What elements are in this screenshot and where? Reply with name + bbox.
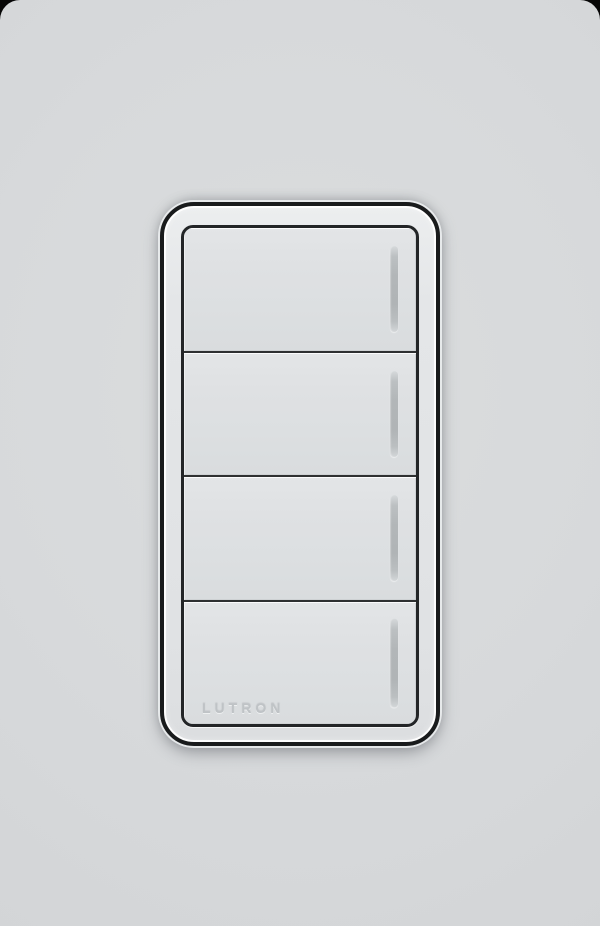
led-indicator <box>390 495 398 581</box>
led-indicator <box>390 246 398 332</box>
scene-button-4[interactable]: LUTRON <box>184 602 416 725</box>
brand-label: LUTRON <box>202 700 284 716</box>
wall-plate: LUTRON <box>0 0 600 926</box>
product-photo: { "device": { "type": "4-button wall key… <box>0 0 600 926</box>
led-indicator <box>390 371 398 457</box>
keypad-frame: LUTRON <box>160 202 440 746</box>
button-panel: LUTRON <box>181 225 419 727</box>
scene-button-2[interactable] <box>184 353 416 476</box>
scene-button-1[interactable] <box>184 228 416 351</box>
scene-button-3[interactable] <box>184 477 416 600</box>
led-indicator <box>390 618 398 707</box>
